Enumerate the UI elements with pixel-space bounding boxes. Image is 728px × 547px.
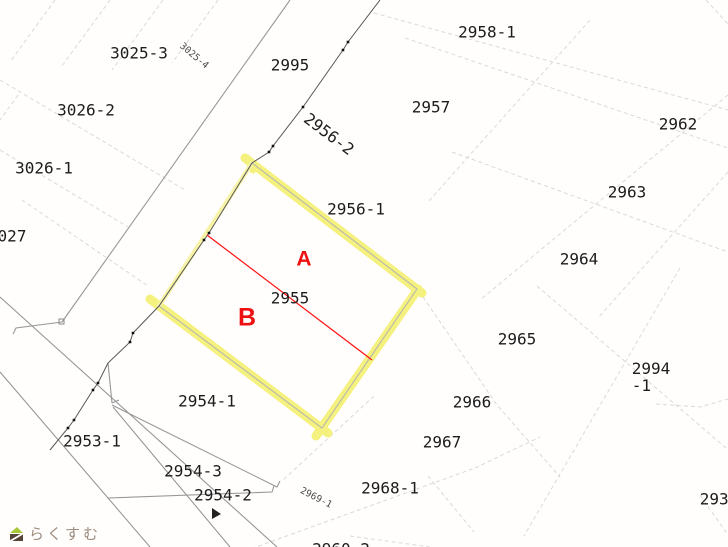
- cadastral-map-view[interactable]: 3025-33025-429952958-1295729623026-22956…: [0, 0, 728, 547]
- watermark: らくすむ: [8, 523, 101, 544]
- faint-parcel-boundaries: [0, 0, 728, 547]
- rakusumu-logo-icon: [8, 526, 24, 542]
- division-line: [207, 235, 372, 360]
- watermark-text: らくすむ: [29, 523, 101, 544]
- arrow-marker: [212, 508, 221, 519]
- boundary-lines: [0, 0, 290, 547]
- map-canvas: [0, 0, 728, 547]
- highlight-stroke-2955: [150, 158, 422, 436]
- highlighted-parcel-boundary: [159, 163, 417, 428]
